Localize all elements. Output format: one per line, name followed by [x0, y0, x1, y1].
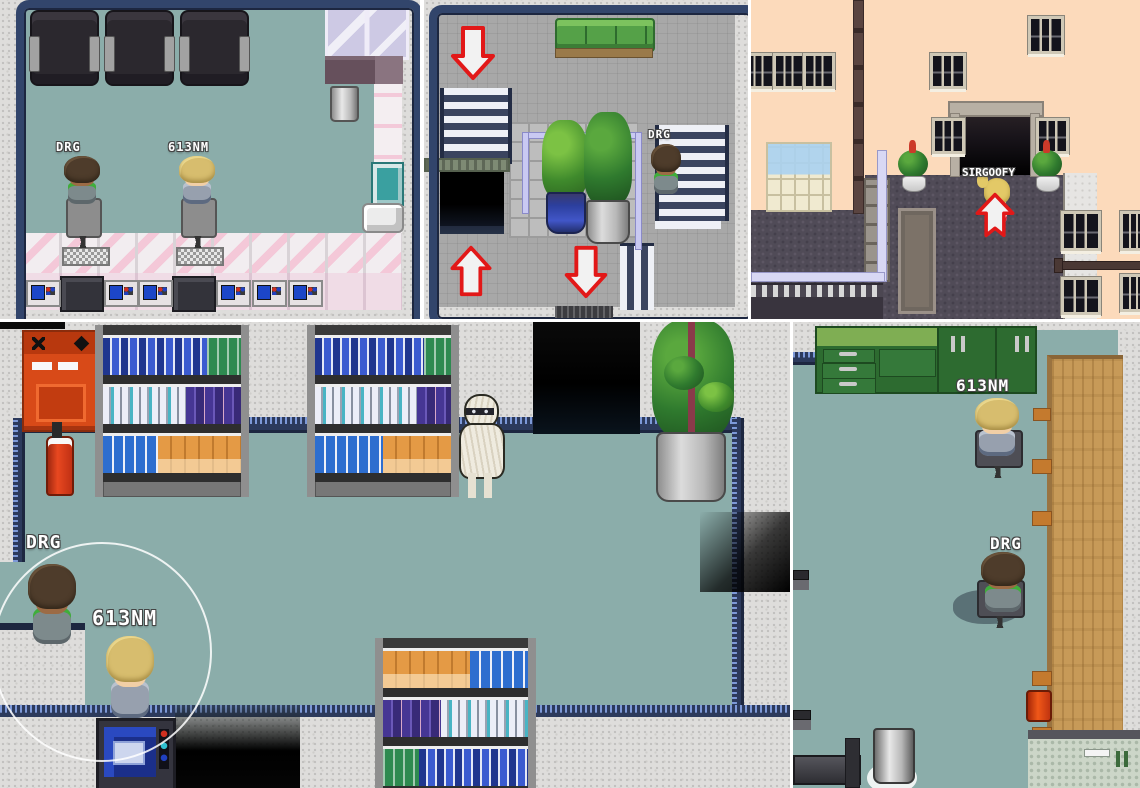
shelf-row [103, 433, 241, 482]
sofa [180, 10, 249, 86]
boxes-orange [383, 436, 451, 473]
cafe-desk [325, 56, 403, 84]
mummy-eyes [466, 408, 494, 415]
window [1061, 211, 1101, 251]
machine-slot [32, 362, 52, 370]
dispenser-x-icon [32, 337, 45, 350]
character-hair [64, 156, 100, 183]
south-doorway[interactable] [175, 705, 300, 788]
cabinet-drawer-wide [879, 349, 936, 377]
white-planter [902, 176, 926, 192]
drain-pipe [853, 0, 864, 214]
dispenser-diamond-icon [74, 336, 90, 352]
books-blue [103, 338, 207, 375]
player-character-613nm[interactable] [106, 636, 154, 718]
vending-machine [22, 330, 99, 432]
shelf-row [315, 384, 451, 433]
warp-arrow-down-icon[interactable] [563, 244, 609, 300]
player-character-drg[interactable] [981, 552, 1025, 612]
large-plant-pot [656, 432, 726, 502]
shelf-row [315, 433, 451, 482]
computer-monitor [172, 276, 216, 312]
fence-base [751, 297, 883, 319]
player-character-drg[interactable] [651, 144, 681, 194]
shelf-row [383, 746, 528, 788]
office-chair [181, 198, 217, 238]
player-nametag: DRG [26, 532, 62, 553]
computer-monitor [60, 276, 104, 312]
books-blue [419, 749, 528, 786]
window [773, 53, 805, 89]
books-green [383, 749, 419, 786]
binders-blue [315, 436, 383, 473]
flower-bush [898, 150, 928, 178]
wall-fixture [793, 570, 809, 580]
warp-arrow-up-icon[interactable] [971, 192, 1019, 238]
drawer-handles [839, 352, 857, 356]
staircase-side [620, 243, 654, 310]
books-white [315, 387, 417, 424]
panel-stairwell: DRG [424, 0, 748, 319]
counter-brackets [1033, 408, 1051, 421]
books-blue [315, 338, 424, 375]
kitchen-appliance [1028, 730, 1140, 788]
player-nametag: DRG [56, 140, 81, 154]
red-canister [1026, 690, 1052, 722]
cabinet-divider [937, 328, 939, 392]
couch-base [555, 48, 653, 58]
mummy-npc[interactable] [455, 394, 505, 498]
warp-arrow-up-icon[interactable] [448, 244, 494, 298]
large-plant-leaves [698, 382, 734, 412]
warp-arrow-down-icon[interactable] [450, 24, 496, 82]
trash-can [873, 728, 915, 784]
player-character-drg[interactable] [28, 564, 76, 644]
stair-landing-dark [440, 168, 504, 234]
character-hair [28, 564, 76, 609]
player-character-613nm[interactable] [179, 156, 215, 204]
window [932, 118, 965, 154]
books-green [207, 338, 242, 375]
roof-upper [865, 175, 1063, 319]
mummy-legs [468, 473, 492, 498]
pc-console [288, 280, 323, 307]
character-hair [975, 398, 1019, 430]
books-white [103, 387, 186, 424]
sofa [30, 10, 99, 86]
mirror [371, 162, 404, 206]
red-flower [1043, 140, 1050, 153]
sofa [105, 10, 174, 86]
flower-bush [1032, 150, 1062, 178]
south-doorway [555, 306, 613, 318]
boxes-orange [158, 436, 241, 473]
wall-trim-vertical [13, 418, 25, 562]
player-nametag: 613NM [168, 140, 209, 154]
cabinet-counter-top [817, 328, 939, 346]
staircase-up [440, 88, 512, 164]
keyboard [62, 247, 110, 266]
player-nametag: 613NM [956, 376, 1009, 395]
green-couch [555, 18, 655, 52]
mummy-body [459, 423, 505, 479]
pc-console [138, 280, 173, 307]
extinguisher-nozzle [52, 422, 62, 438]
appliance-handle [1084, 749, 1110, 757]
books-green [424, 338, 451, 375]
trash-can [330, 86, 359, 122]
character-hair [981, 552, 1025, 586]
panel-street: SIRGOOFY [751, 0, 1140, 319]
store-shelf [95, 325, 249, 497]
keyboard [176, 247, 224, 266]
shelf-row [103, 335, 241, 384]
handrail [424, 158, 510, 172]
shelf-row [103, 384, 241, 433]
sink [362, 203, 404, 233]
railing-right [635, 132, 642, 250]
window [1120, 211, 1140, 251]
books-purple [417, 387, 451, 424]
glass-cabinet [325, 6, 409, 60]
office-chair [66, 198, 102, 238]
window [803, 53, 835, 89]
player-character-613nm[interactable] [975, 398, 1019, 456]
red-flower [909, 140, 916, 153]
pc-console [216, 280, 251, 307]
panel-cafe: DRG 613NM [0, 0, 420, 319]
boxes-orange [383, 651, 470, 688]
player-character-drg[interactable] [64, 156, 100, 204]
gray-plant-pot [586, 200, 630, 244]
window [1036, 118, 1069, 154]
counter-post [845, 738, 860, 788]
window [1028, 16, 1064, 54]
white-pipe-vertical [877, 150, 887, 282]
machine-door [36, 384, 86, 422]
store-shelf [307, 325, 459, 497]
binders-blue [103, 436, 158, 473]
window [1120, 274, 1140, 312]
appliance-vents [1116, 751, 1120, 767]
books-white [441, 700, 528, 737]
white-planter [1036, 176, 1060, 192]
window [1061, 277, 1101, 315]
pc-console [104, 280, 139, 307]
glass-door [766, 142, 832, 212]
north-doorway[interactable] [533, 322, 640, 434]
character-body [985, 585, 1020, 612]
store-shelf [375, 638, 536, 788]
character-hair [179, 156, 215, 183]
shelf-top [383, 638, 528, 648]
potted-plant-leaves [584, 112, 632, 204]
character-hair [106, 636, 154, 682]
wall-pole [1056, 261, 1140, 270]
books-purple [186, 387, 241, 424]
top-black-bar [0, 322, 65, 329]
large-plant-leaves [664, 356, 704, 390]
stair-base [655, 221, 721, 229]
potted-plant-leaves [542, 120, 588, 198]
pc-console [252, 280, 287, 307]
railing-left [522, 132, 529, 214]
panel-breakroom: 613NM DRG [793, 322, 1140, 788]
shelf-row [383, 697, 528, 746]
screenshot-collage: DRG 613NM [0, 0, 1140, 788]
shelf-row [315, 335, 451, 384]
fire-extinguisher [46, 436, 74, 496]
wood-counter [1047, 355, 1123, 739]
east-door-shadow [700, 512, 790, 592]
player-nametag: DRG [648, 128, 671, 141]
pc-console [26, 280, 61, 307]
shelf-row [383, 648, 528, 697]
player-nametag: SIRGOOFY [962, 166, 1015, 179]
pole-cap [1054, 258, 1063, 273]
books-purple [383, 700, 441, 737]
window [751, 53, 775, 89]
shelf-top [315, 325, 451, 335]
player-nametag: DRG [990, 534, 1022, 553]
crate-stack [898, 208, 936, 314]
window [930, 53, 966, 89]
shelf-top [103, 325, 241, 335]
white-pipe-horizontal [751, 272, 885, 282]
binders-blue [470, 651, 528, 688]
panel-store: DRG 613NM [0, 322, 790, 788]
player-nametag: 613NM [92, 606, 157, 630]
cabinet-door-handles [951, 336, 955, 352]
blue-plant-pot [546, 192, 586, 234]
character-hair [651, 144, 681, 172]
wall-fixture [793, 710, 811, 720]
